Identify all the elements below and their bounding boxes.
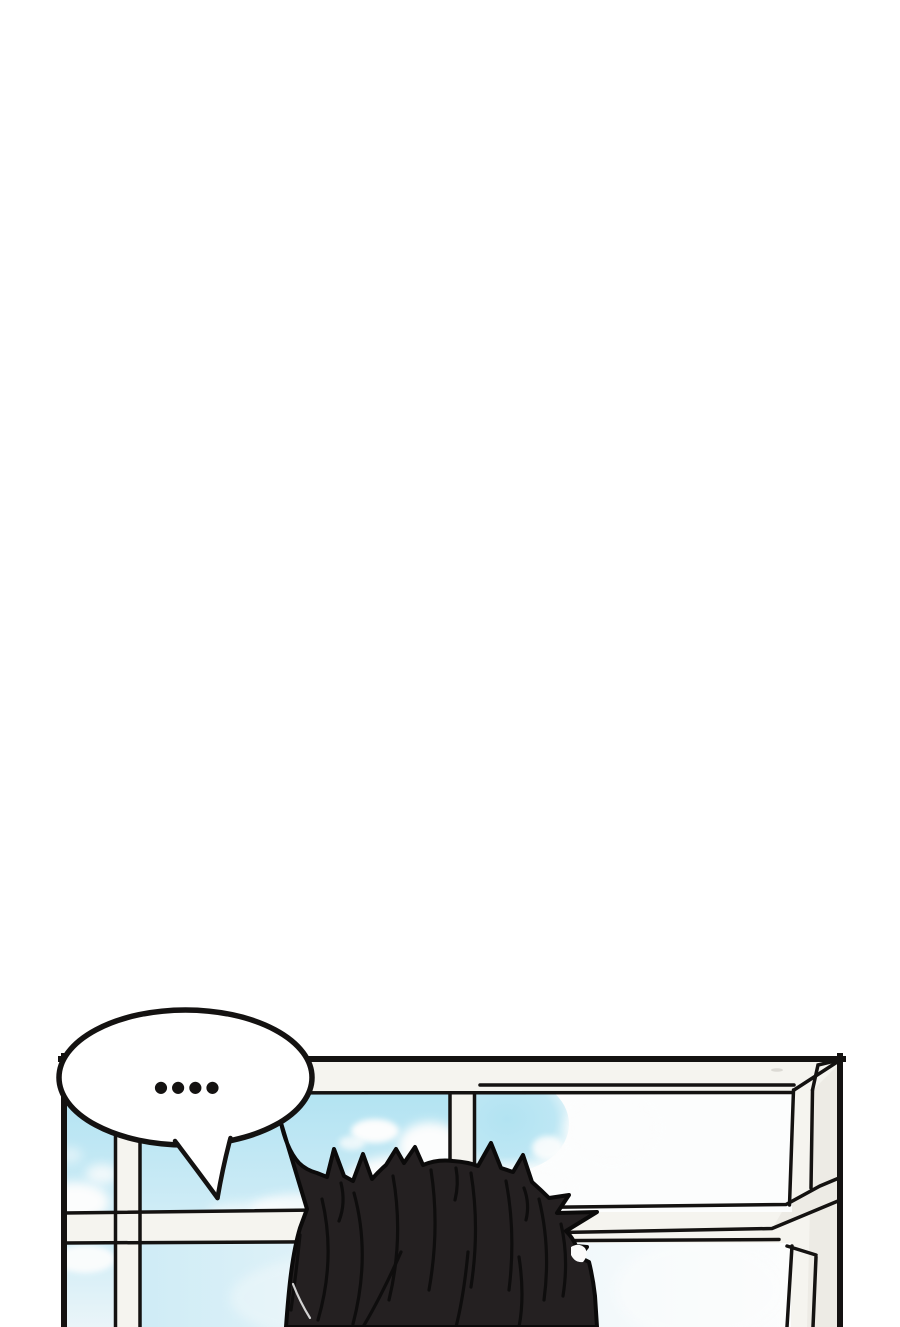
speech-bubble-text: ●●●● [154,1077,223,1096]
right-frame-depth-edge [811,1090,813,1188]
webtoon-strip: ●●●● [0,0,900,1327]
frame-smudge [771,1068,783,1072]
comic-panel-image: ●●●● [0,0,900,1327]
